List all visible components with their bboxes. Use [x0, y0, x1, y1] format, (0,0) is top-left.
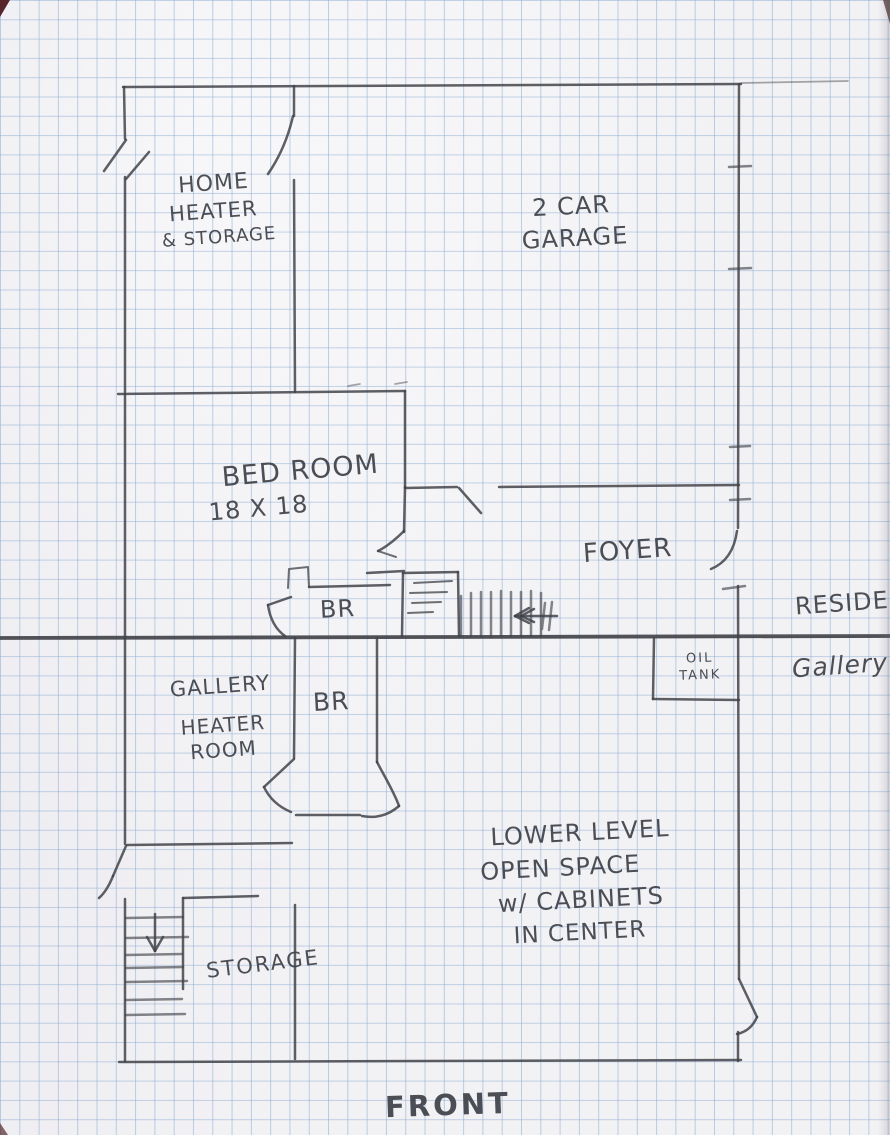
label-line: 2 CAR: [532, 190, 628, 223]
room-label-lower-level: LOWER LEVEL OPEN SPACE w/ CABINETS IN CE…: [478, 815, 675, 951]
foyer-entry-door: [711, 531, 737, 569]
level-divider-line: [0, 636, 890, 638]
annotation-front: FRONT: [384, 1087, 511, 1125]
floor-plan-drawing: [0, 0, 890, 1135]
label-line: OIL: [669, 651, 729, 668]
label-line: TANK: [670, 668, 730, 685]
room-label-br-lower: BR: [312, 687, 350, 718]
foyer-wall: [405, 485, 739, 513]
room-label-foyer: FOYER: [582, 534, 673, 570]
closet-box: [402, 572, 459, 636]
room-label-br-upper: BR: [319, 595, 356, 624]
label-line: w/ CABINETS: [497, 882, 673, 919]
stairs-lower: [126, 917, 188, 1015]
label-oil-tank: OIL TANK: [669, 651, 730, 685]
label-line: HOME: [177, 167, 273, 199]
door-upper-left: [104, 140, 149, 179]
stairs-upper: [461, 591, 552, 637]
lower-bath-walls: [264, 638, 399, 817]
graph-paper-sheet: HOME HEATER & STORAGE 2 CAR GARAGE BED R…: [0, 0, 890, 1135]
gallery-heater-walls: [99, 843, 292, 898]
stairs-lower-direction-arrow-down: [147, 914, 163, 951]
scan-edge-shadow: [878, 0, 890, 1135]
door-lower-right: [737, 979, 757, 1034]
room-label-gallery-heater: GALLERY HEATER ROOM: [169, 671, 275, 766]
label-line: OPEN SPACE: [480, 849, 672, 887]
room-label-home-heater: HOME HEATER & STORAGE: [157, 167, 277, 253]
label-line: GARAGE: [521, 222, 629, 255]
room-label-garage: 2 CAR GARAGE: [520, 190, 629, 255]
label-line: HEATER: [168, 195, 275, 226]
